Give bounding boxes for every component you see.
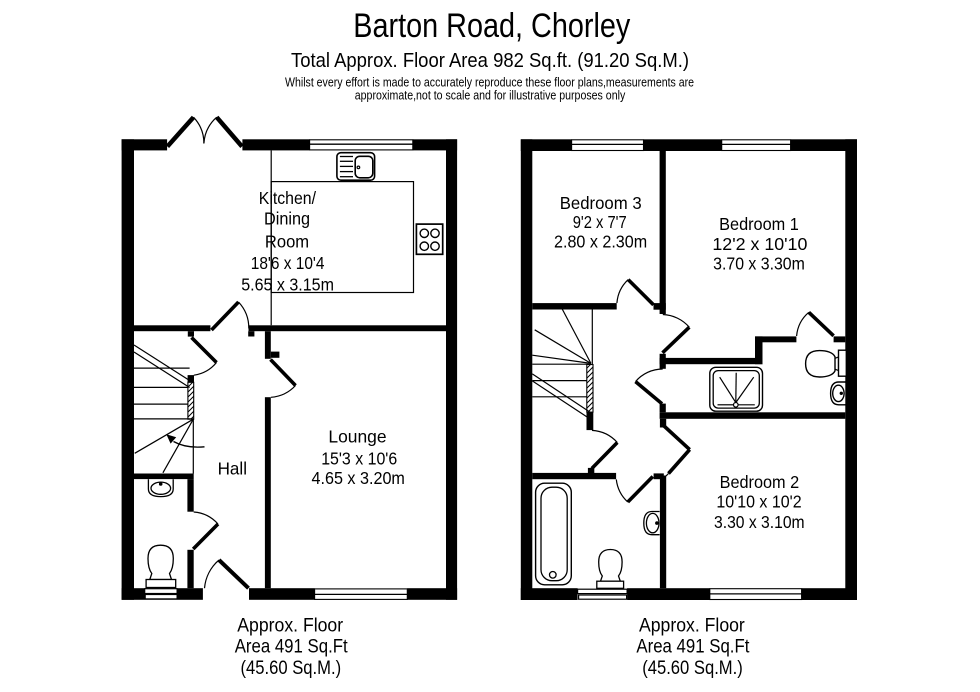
svg-text:Kitchen/: Kitchen/	[259, 188, 316, 208]
svg-text:Bedroom 3: Bedroom 3	[560, 193, 642, 213]
svg-text:approximate,not to scale and f: approximate,not to scale and for illustr…	[355, 88, 626, 103]
svg-text:Bedroom 1: Bedroom 1	[719, 214, 799, 234]
svg-text:10'10 x 10'2: 10'10 x 10'2	[716, 491, 801, 511]
svg-text:Approx. Floor: Approx. Floor	[237, 616, 343, 637]
svg-text:5.65 x 3.15m: 5.65 x 3.15m	[241, 275, 334, 295]
svg-text:18'6 x 10'4: 18'6 x 10'4	[251, 253, 325, 273]
svg-text:3.30 x 3.10m: 3.30 x 3.10m	[714, 512, 805, 532]
svg-text:3.70 x 3.30m: 3.70 x 3.30m	[713, 254, 805, 274]
svg-text:Room: Room	[265, 232, 309, 252]
svg-text:12'2 x 10'10: 12'2 x 10'10	[712, 234, 807, 254]
svg-text:Hall: Hall	[218, 458, 247, 478]
svg-text:(45.60 Sq.M.): (45.60 Sq.M.)	[642, 658, 743, 679]
svg-text:4.65 x 3.20m: 4.65 x 3.20m	[312, 468, 405, 488]
svg-text:Barton Road, Chorley: Barton Road, Chorley	[353, 7, 630, 45]
svg-text:15'3 x 10'6: 15'3 x 10'6	[321, 448, 397, 468]
svg-text:(45.60 Sq.M.): (45.60 Sq.M.)	[241, 658, 342, 679]
svg-text:2.80 x 2.30m: 2.80 x 2.30m	[554, 231, 647, 251]
svg-text:Lounge: Lounge	[328, 426, 386, 446]
svg-text:9'2 x 7'7: 9'2 x 7'7	[573, 212, 627, 232]
svg-text:Area 491 Sq.Ft: Area 491 Sq.Ft	[235, 637, 349, 658]
svg-text:Bedroom 2: Bedroom 2	[720, 472, 800, 492]
svg-text:Approx. Floor: Approx. Floor	[639, 616, 745, 637]
svg-text:Area 491 Sq.Ft: Area 491 Sq.Ft	[636, 637, 750, 658]
svg-text:Total Approx. Floor Area 982 S: Total Approx. Floor Area 982 Sq.ft. (91.…	[291, 49, 689, 72]
svg-text:Dining: Dining	[264, 209, 310, 229]
